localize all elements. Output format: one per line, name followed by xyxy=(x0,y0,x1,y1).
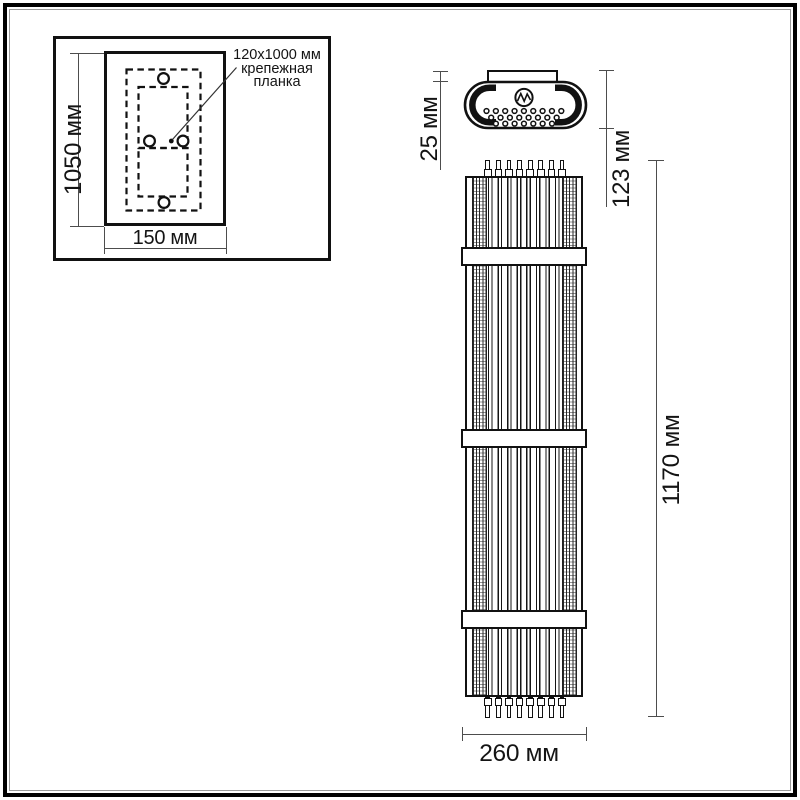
dim-1050-tick-top xyxy=(70,53,104,54)
front-band-middle xyxy=(461,429,587,448)
perforation-dot xyxy=(531,121,536,126)
front-band-bottom xyxy=(461,610,587,629)
perforation-dot xyxy=(503,109,508,114)
dim-123-label: 123 мм xyxy=(608,129,632,209)
dim-150-ext-right xyxy=(226,227,227,254)
perforation-dot xyxy=(489,115,494,120)
dim-123-tick-top xyxy=(599,70,614,71)
dim-25-tick-bottom xyxy=(433,81,448,82)
perforation-dot xyxy=(498,115,503,120)
mount-hole-middle-right xyxy=(178,136,189,147)
perforation-dot xyxy=(536,115,541,120)
callout-leader-line xyxy=(173,68,237,140)
perforation-dot xyxy=(531,109,536,114)
dim-260-line xyxy=(462,734,586,735)
front-rods-top xyxy=(484,160,566,177)
perforation-dot xyxy=(540,121,545,126)
front-rods-bottom xyxy=(484,697,566,718)
mount-hole-bottom xyxy=(159,197,170,208)
perforation-dot xyxy=(512,121,517,126)
perforation-dot xyxy=(522,121,527,126)
perforation-dot xyxy=(517,115,522,120)
dim-260-tick-right xyxy=(586,727,587,741)
dim-260-label: 260 мм xyxy=(444,740,594,768)
perforation-dot xyxy=(545,115,550,120)
front-rod-collar xyxy=(558,698,566,706)
dim-1170-tick-bottom xyxy=(648,716,664,717)
perforation-dot xyxy=(508,115,513,120)
topview-svg xyxy=(455,75,600,135)
perforation-dot xyxy=(522,109,527,114)
dim-1050-label: 1050 мм xyxy=(60,105,84,195)
dim-1170-tick-top xyxy=(648,160,664,161)
dim-123-line xyxy=(606,70,607,207)
perforation-dot xyxy=(550,121,555,126)
front-rod-collar xyxy=(516,698,524,706)
mount-strip-callout: 120x1000 мм крепежная планка xyxy=(233,49,321,90)
perforation-dot xyxy=(484,109,489,114)
dim-150-label: 150 мм xyxy=(115,227,215,250)
mount-bracket-lower-dashed xyxy=(139,148,188,197)
mount-hole-middle-left xyxy=(144,136,155,147)
perforation-dot xyxy=(503,121,508,126)
dim-1050-tick-bottom xyxy=(70,226,104,227)
perforation-dot xyxy=(554,115,559,120)
perforation-dot xyxy=(494,121,499,126)
front-rod-collar xyxy=(495,698,503,706)
front-rod-collar xyxy=(484,698,492,706)
front-rod-collar xyxy=(548,698,556,706)
perforation-dot xyxy=(526,115,531,120)
dim-25-tick-top xyxy=(433,71,448,72)
mount-hole-top xyxy=(158,73,169,84)
callout-word-2: планка xyxy=(233,76,321,90)
dim-150-ext-left xyxy=(104,227,105,254)
perforation-dot xyxy=(493,109,498,114)
front-rod-collar xyxy=(537,698,545,706)
perforation-dot xyxy=(512,109,517,114)
front-rod-collar xyxy=(526,698,534,706)
dim-1170-label: 1170 мм xyxy=(658,405,684,515)
front-rod-collar xyxy=(505,698,513,706)
dimension-drawing-canvas: 120x1000 мм крепежная планка 1050 мм 150… xyxy=(0,0,800,800)
perforation-dot xyxy=(540,109,545,114)
dim-25-label: 25 мм xyxy=(416,94,440,164)
dim-1170-line xyxy=(656,160,657,717)
front-band-top xyxy=(461,247,587,266)
perforation-dot xyxy=(559,109,564,114)
perforation-dot xyxy=(550,109,555,114)
